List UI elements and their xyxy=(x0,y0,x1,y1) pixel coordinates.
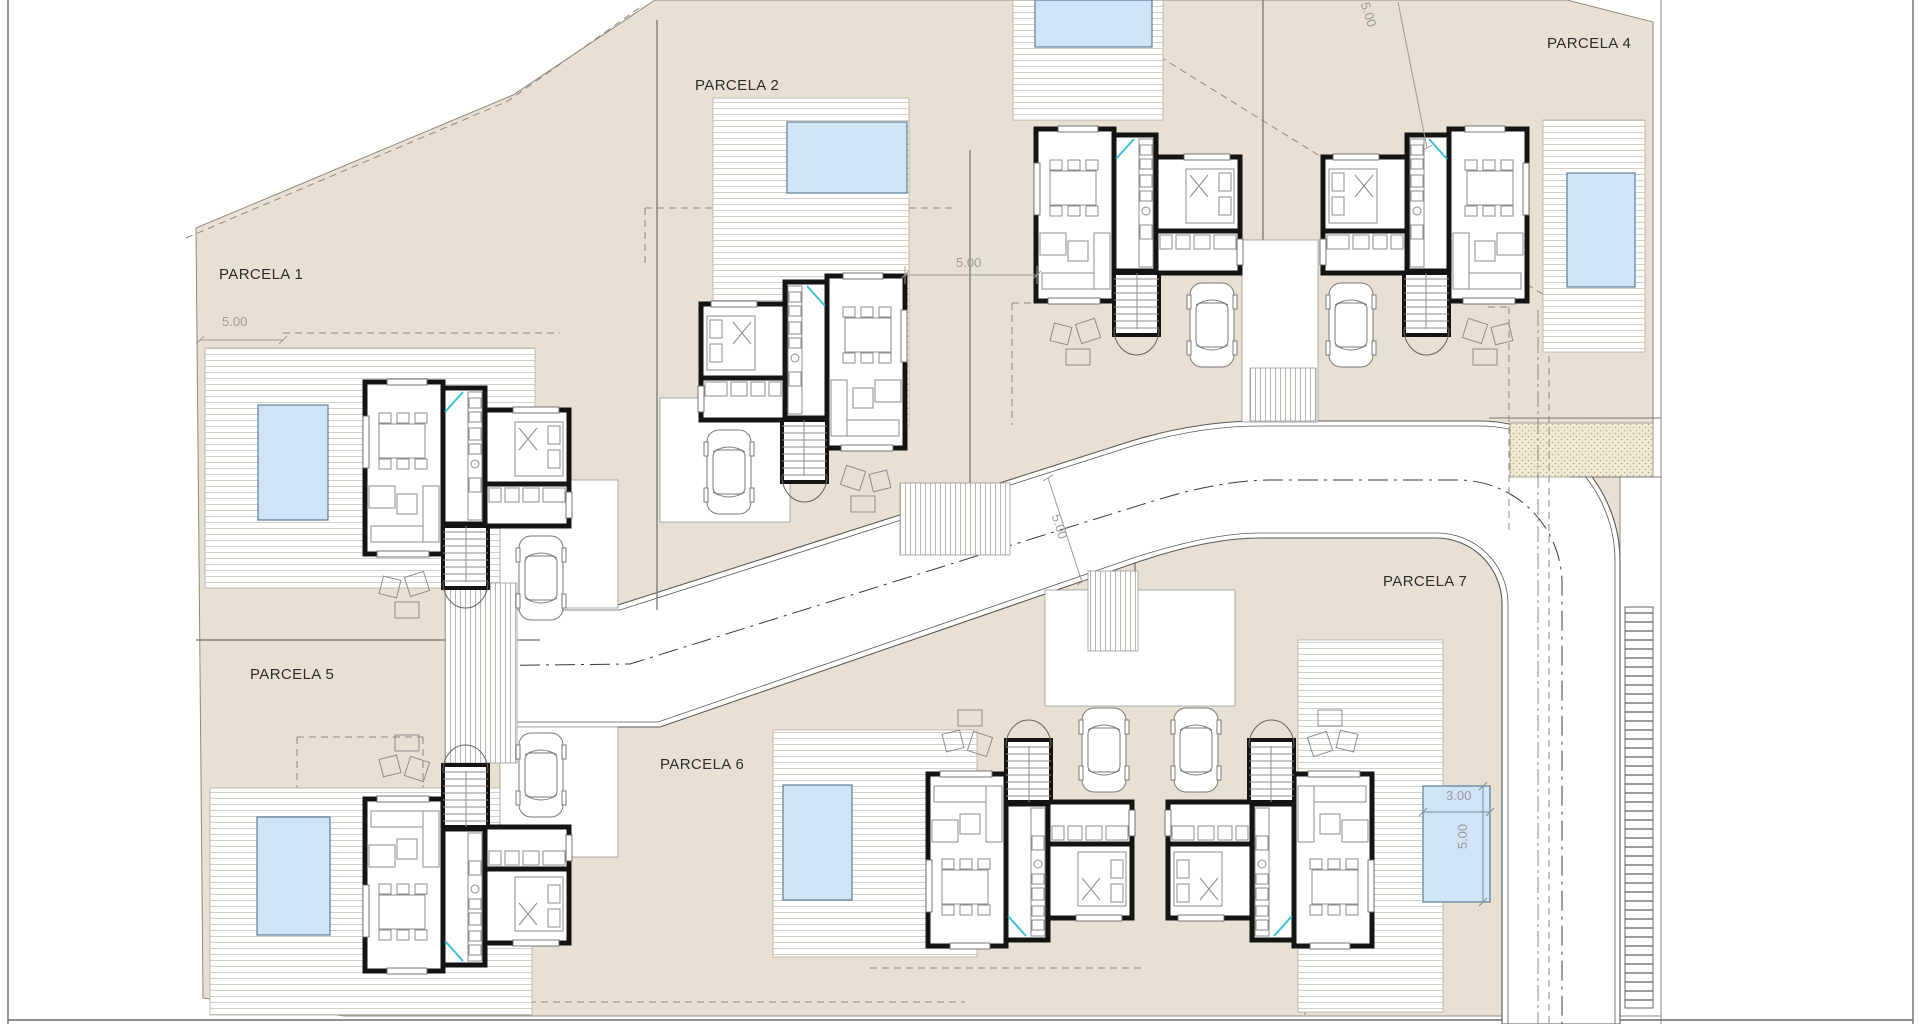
pool xyxy=(1567,173,1635,287)
parcel-label-5: PARCELA 5 xyxy=(250,667,334,684)
ramp xyxy=(900,483,1010,555)
pool xyxy=(783,785,852,900)
ramp xyxy=(1088,571,1138,651)
dimension-text-pool-length: 5.00 xyxy=(1456,824,1469,849)
parcel-label-4: PARCELA 4 xyxy=(1547,36,1631,53)
pool xyxy=(1035,0,1152,47)
dimension-text-setback-p1: 5.00 xyxy=(222,315,247,328)
pool xyxy=(787,122,907,193)
blueprint-page: PARCELA 1 PARCELA 2 PARCELA 4 PARCELA 5 … xyxy=(0,0,1920,1024)
ramp xyxy=(1250,368,1316,421)
stair-path xyxy=(1625,607,1653,1008)
gravel-strip xyxy=(1489,418,1661,477)
parcel-label-2: PARCELA 2 xyxy=(695,78,779,95)
dimension-text-pool-width: 3.00 xyxy=(1446,789,1471,802)
dimension-text-gap-p2: 5.00 xyxy=(956,256,981,269)
parcel-label-7: PARCELA 7 xyxy=(1383,574,1467,591)
parcel-label-1: PARCELA 1 xyxy=(219,267,303,284)
pool xyxy=(257,817,330,935)
site-plan xyxy=(0,0,1920,1024)
ramp xyxy=(445,583,517,763)
parcel-label-6: PARCELA 6 xyxy=(660,757,744,774)
pool xyxy=(258,405,328,520)
garage-court xyxy=(1045,590,1235,706)
